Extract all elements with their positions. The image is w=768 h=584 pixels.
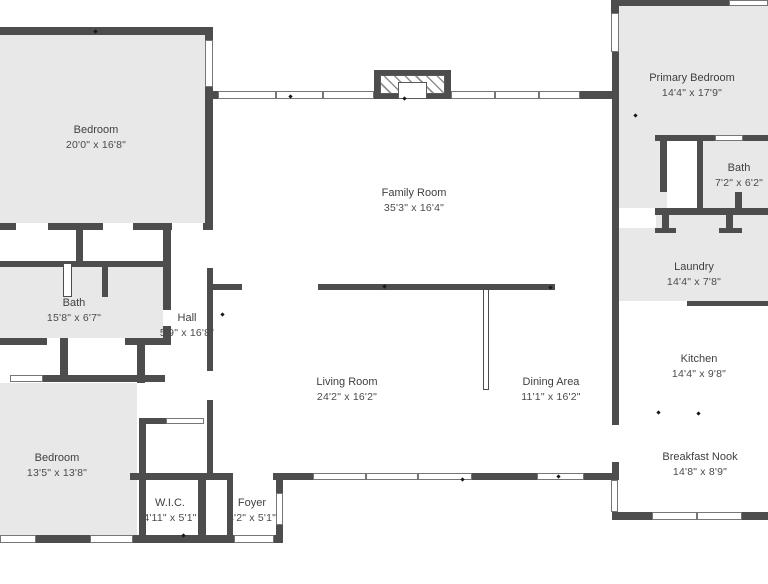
floor-plan: Bedroom 20'0" x 16'8" Family Room 35'3" … (0, 0, 768, 584)
fireplace-firebox (398, 82, 427, 99)
wall (130, 473, 233, 480)
room-dims: 7'2" x 6'2" (715, 176, 763, 190)
wall (0, 261, 171, 267)
wall (662, 215, 669, 228)
room-label-bath-left: Bath 15'8" x 6'7" (47, 296, 101, 325)
window (323, 91, 374, 99)
room-label-living-room: Living Room 24'2" x 16'2" (316, 375, 377, 404)
room-name: Family Room (382, 186, 447, 201)
room-dims: 24'2" x 16'2" (316, 390, 377, 404)
wall (612, 512, 652, 520)
room-label-bath-primary: Bath 7'2" x 6'2" (715, 161, 763, 190)
pocket-door (63, 263, 72, 297)
wall (719, 228, 742, 233)
wall (198, 480, 206, 535)
closet-door (10, 375, 43, 382)
wall (0, 338, 47, 345)
wall (611, 6, 619, 13)
room-dims: 5'9" x 16'8" (160, 326, 214, 340)
wall (318, 284, 555, 290)
room-label-hall: Hall 5'9" x 16'8" (160, 311, 214, 340)
window (652, 512, 697, 520)
window (276, 493, 283, 525)
door-marker (696, 411, 700, 415)
wall (36, 535, 90, 543)
wall (203, 223, 213, 230)
window (729, 0, 768, 6)
closet-fill-primary (667, 141, 697, 208)
window (218, 91, 276, 99)
room-label-family-room: Family Room 35'3" x 16'4" (382, 186, 447, 215)
room-label-bedroom-top-left: Bedroom 20'0" x 16'8" (66, 123, 126, 152)
window (205, 40, 213, 87)
room-dims: 20'0" x 16'8" (66, 138, 126, 152)
room-dims: 14'4" x 17'9" (649, 86, 735, 100)
room-name: Dining Area (521, 375, 580, 390)
window (611, 480, 618, 512)
room-name: Breakfast Nook (662, 450, 737, 465)
door-marker (656, 410, 660, 414)
room-label-breakfast-nook: Breakfast Nook 14'8" x 8'9" (662, 450, 737, 479)
wall (612, 52, 619, 425)
wall (102, 267, 108, 297)
wall (276, 473, 283, 493)
wall (43, 375, 165, 382)
wall (76, 229, 83, 261)
wall (660, 135, 667, 192)
room-name: Primary Bedroom (649, 71, 735, 86)
room-name: Bath (715, 161, 763, 176)
door-gap-primary-bedroom (619, 215, 656, 228)
wall (60, 338, 68, 377)
window (366, 473, 418, 480)
room-label-kitchen: Kitchen 14'4" x 9'8" (672, 352, 726, 381)
room-label-dining-area: Dining Area 11'1" x 16'2" (521, 375, 580, 404)
room-name: Hall (160, 311, 214, 326)
wall (611, 0, 730, 6)
room-name: Foyer (228, 496, 276, 511)
room-name: Bedroom (66, 123, 126, 138)
room-label-bedroom-bottom-left: Bedroom 13'5" x 13'8" (27, 451, 87, 480)
room-name: Bath (47, 296, 101, 311)
wall (687, 301, 768, 306)
room-name: Laundry (667, 260, 721, 275)
door-marker (460, 477, 464, 481)
living-dining-partition (483, 289, 489, 390)
room-name: Kitchen (672, 352, 726, 367)
wall (205, 87, 213, 230)
room-name: Bedroom (27, 451, 87, 466)
room-dims: 13'5" x 13'8" (27, 466, 87, 480)
room-dims: 4'2" x 5'1" (228, 511, 276, 525)
door-marker (402, 96, 406, 100)
room-label-foyer: Foyer 4'2" x 5'1" (228, 496, 276, 525)
room-dims: 11'1" x 16'2" (521, 390, 580, 404)
wall (0, 223, 16, 230)
window (451, 91, 495, 99)
room-name: W.I.C. (143, 496, 196, 511)
wall (163, 229, 171, 310)
room-dims: 15'8" x 6'7" (47, 311, 101, 325)
window (313, 473, 366, 480)
wall (472, 473, 537, 480)
wall (735, 192, 742, 209)
window (715, 135, 743, 141)
window (0, 535, 36, 543)
room-dims: 35'3" x 16'4" (382, 201, 447, 215)
window (697, 512, 742, 520)
window (611, 13, 619, 52)
wall (207, 400, 213, 477)
room-label-laundry: Laundry 14'4" x 7'8" (667, 260, 721, 289)
window (276, 91, 323, 99)
window (539, 91, 580, 99)
front-door-sidelite (234, 535, 274, 543)
wall (697, 141, 703, 215)
room-dims: 14'8" x 8'9" (662, 465, 737, 479)
room-label-primary-bedroom: Primary Bedroom 14'4" x 17'9" (649, 71, 735, 100)
room-name: Living Room (316, 375, 377, 390)
wall (655, 228, 676, 233)
room-dims: 14'4" x 9'8" (672, 367, 726, 381)
room-dims: 4'11" x 5'1" (143, 511, 196, 525)
wall (0, 27, 213, 35)
window (90, 535, 133, 543)
wall (726, 215, 733, 228)
window (166, 418, 204, 424)
wall (742, 512, 768, 520)
room-dims: 14'4" x 7'8" (667, 275, 721, 289)
room-label-wic: W.I.C. 4'11" x 5'1" (143, 496, 196, 525)
window (495, 91, 539, 99)
door-marker (220, 312, 224, 316)
wall (584, 473, 619, 480)
wall (743, 135, 768, 141)
wall (274, 535, 283, 543)
wall (655, 208, 768, 215)
